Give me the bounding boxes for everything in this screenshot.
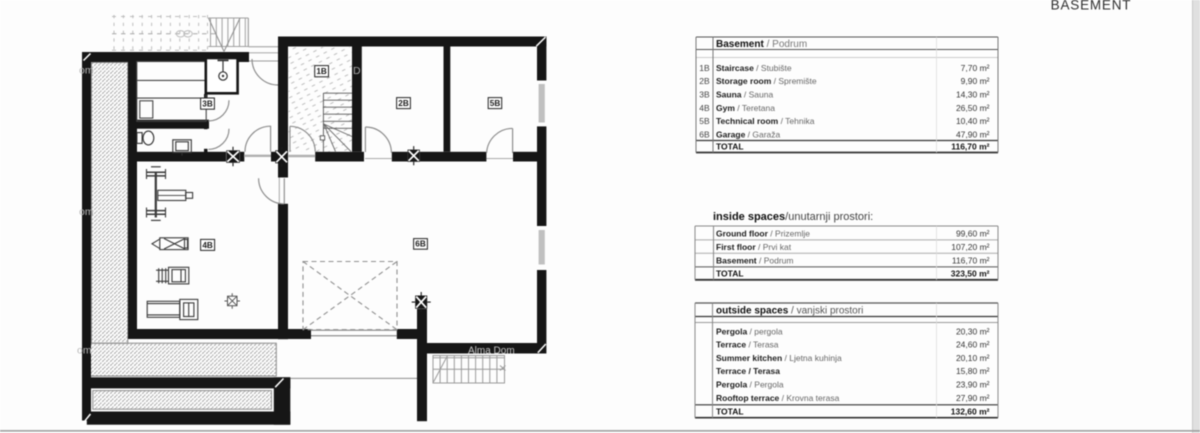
svg-text:132,60 m²: 132,60 m² [951, 407, 990, 417]
svg-text:15,80 m²: 15,80 m² [956, 366, 990, 376]
svg-text:323,50 m²: 323,50 m² [951, 269, 990, 279]
svg-text:107,20 m²: 107,20 m² [951, 242, 989, 252]
svg-text:TOTAL: TOTAL [716, 269, 744, 279]
svg-text:116,70 m²: 116,70 m² [951, 142, 989, 152]
svg-text:Basement / Podrum: Basement / Podrum [716, 255, 794, 265]
svg-text:Gym / Teretana: Gym / Teretana [716, 103, 775, 113]
svg-text:inside spaces/unutarnji prosto: inside spaces/unutarnji prostori: [713, 211, 873, 223]
svg-text:1B: 1B [699, 63, 710, 73]
svg-text:Terrace / Terasa: Terrace / Terasa [716, 366, 780, 376]
svg-text:TOTAL: TOTAL [716, 407, 744, 417]
svg-text:7,70 m²: 7,70 m² [961, 63, 990, 73]
svg-text:Technical room / Tehnika: Technical room / Tehnika [716, 116, 815, 126]
svg-text:Storage room / Spremište: Storage room / Spremište [716, 76, 817, 86]
svg-text:116,70 m²: 116,70 m² [952, 255, 990, 265]
svg-text:Terrace / Terasa: Terrace / Terasa [716, 340, 779, 350]
svg-text:Sauna / Sauna: Sauna / Sauna [716, 90, 773, 100]
svg-text:BASEMENT: BASEMENT [1051, 0, 1132, 13]
svg-text:5B: 5B [699, 116, 710, 126]
svg-text:20,30 m²: 20,30 m² [956, 326, 990, 336]
svg-text:26,50 m²: 26,50 m² [956, 103, 990, 113]
svg-text:27,90 m²: 27,90 m² [956, 393, 990, 403]
svg-text:23,90 m²: 23,90 m² [956, 380, 990, 390]
svg-text:6B: 6B [415, 240, 426, 249]
svg-text:Alma Dom: Alma Dom [468, 346, 515, 357]
svg-text:20,10 m²: 20,10 m² [956, 353, 990, 363]
svg-text:Basement / Podrum: Basement / Podrum [716, 39, 807, 50]
svg-text:10,40 m²: 10,40 m² [956, 116, 990, 126]
svg-text:Staircase / Stubište: Staircase / Stubište [716, 63, 792, 73]
svg-text:24,60 m²: 24,60 m² [956, 340, 990, 350]
svg-text:Ground floor / Prizemlje: Ground floor / Prizemlje [716, 228, 810, 238]
svg-text:3B: 3B [202, 99, 213, 108]
svg-text:2B: 2B [398, 99, 409, 108]
svg-text:TOTAL: TOTAL [716, 142, 744, 152]
svg-text:3B: 3B [699, 90, 710, 100]
svg-text:99,60 m²: 99,60 m² [956, 228, 990, 238]
svg-text:outside spaces / vanjski prost: outside spaces / vanjski prostori [716, 306, 863, 317]
svg-text:D: D [353, 65, 361, 77]
svg-text:Pergola / Pergola: Pergola / Pergola [716, 380, 784, 390]
svg-text:om: om [79, 64, 94, 76]
svg-text:First floor / Prvi kat: First floor / Prvi kat [716, 242, 792, 252]
svg-text:Pergola / pergola: Pergola / pergola [716, 326, 783, 336]
svg-text:2B: 2B [699, 76, 710, 86]
svg-text:Summer kitchen / Ljetna kuhinj: Summer kitchen / Ljetna kuhinja [716, 353, 842, 363]
svg-text:4B: 4B [202, 241, 213, 250]
svg-text:47,90 m²: 47,90 m² [956, 130, 990, 140]
svg-text:4B: 4B [699, 103, 710, 113]
svg-text:om: om [77, 345, 92, 357]
svg-text:9,90 m²: 9,90 m² [961, 76, 990, 86]
svg-text:Rooftop terrace / Krovna teras: Rooftop terrace / Krovna terasa [716, 393, 840, 403]
svg-text:5B: 5B [490, 99, 501, 108]
svg-text:14,30 m²: 14,30 m² [956, 90, 990, 100]
svg-text:6B: 6B [699, 130, 710, 140]
svg-text:1B: 1B [316, 67, 327, 76]
svg-text:om: om [79, 206, 94, 218]
svg-text:Garage / Garaža: Garage / Garaža [716, 130, 781, 140]
